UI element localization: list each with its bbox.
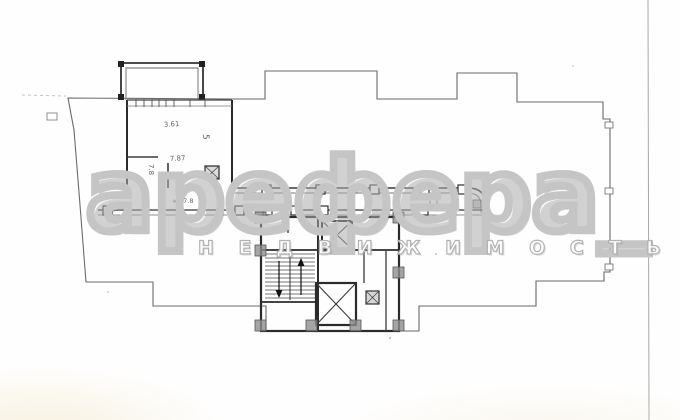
duct-shaft [366, 291, 379, 304]
stair-arrow-up-icon [298, 258, 305, 295]
scanned-floor-plan-page: 3.61 5 7.8 7.87 кл.7.8 арефера_ Н Е Д В … [0, 0, 680, 420]
stair-arrow-down-icon [276, 261, 283, 298]
elevator-shaft-large [316, 283, 356, 325]
dim-label-361: 3.61 [164, 120, 180, 129]
balcony [118, 61, 205, 100]
watermark-subtitle: Н Е Д В И Ж И М О С Т Ь [198, 237, 670, 260]
watermark-logo: арефера_ [86, 146, 649, 246]
